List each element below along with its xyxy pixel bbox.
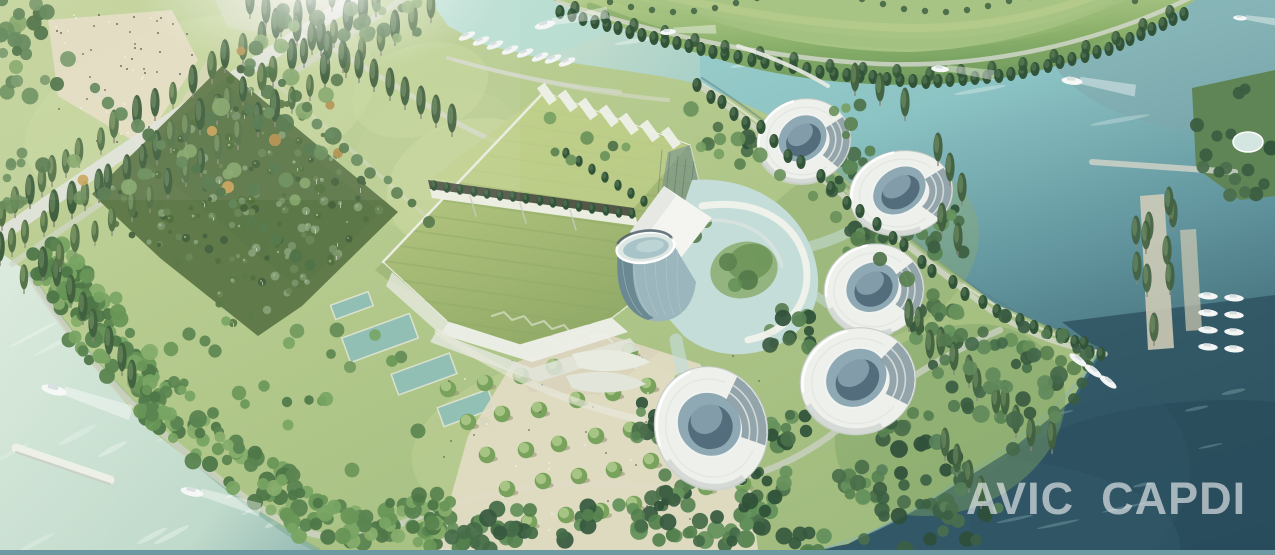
svg-text:AVIC CAPDI: AVIC CAPDI: [966, 473, 1246, 524]
